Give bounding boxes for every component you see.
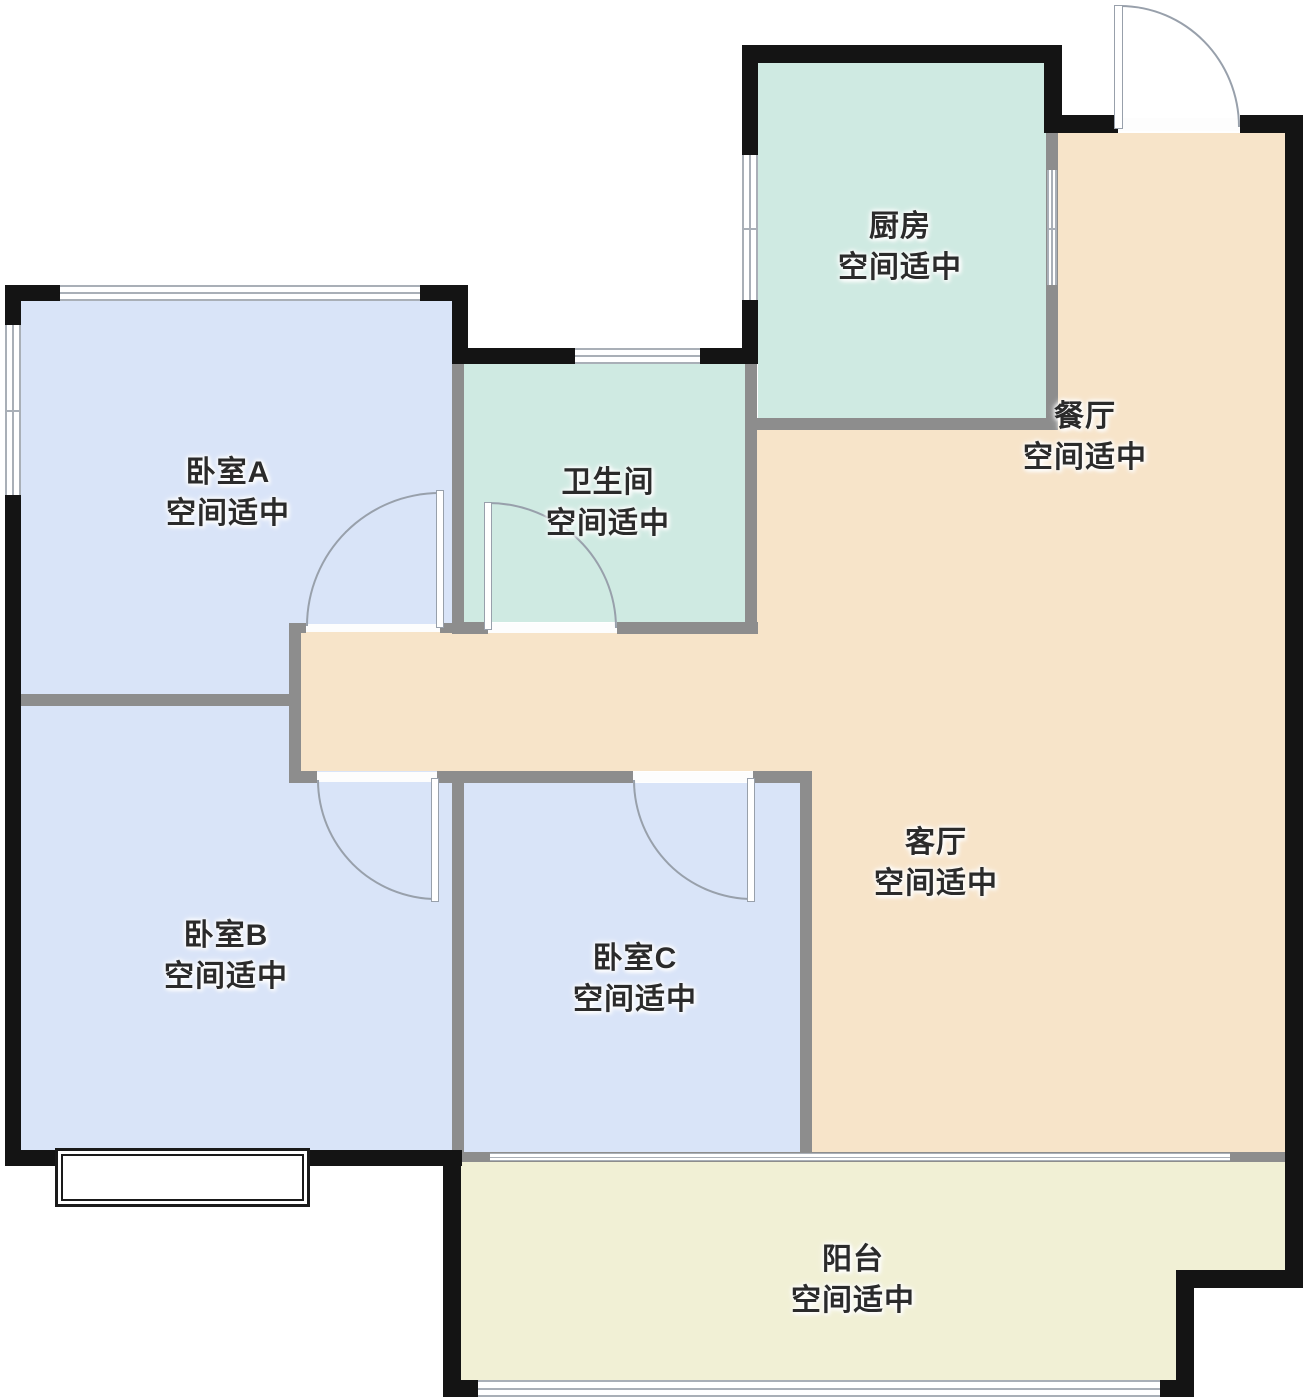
room-label-dining: 餐厅 空间适中 xyxy=(1023,396,1147,478)
room-status: 空间适中 xyxy=(874,863,998,904)
room-name: 餐厅 xyxy=(1023,396,1147,437)
room-status: 空间适中 xyxy=(573,979,697,1020)
bay-window-bedroom-b xyxy=(55,1148,310,1207)
room-label-balcony: 阳台 空间适中 xyxy=(791,1239,915,1321)
window-kitchen-left xyxy=(742,155,758,300)
door-arc-entrance xyxy=(1120,5,1240,127)
window-bedroom-a-left xyxy=(5,325,21,495)
wall-bedroom-c-right xyxy=(800,771,812,1152)
room-name: 卧室A xyxy=(166,452,290,493)
wall-hallway-left xyxy=(289,623,301,783)
wall-balcony-bottom-right xyxy=(1160,1380,1194,1397)
wall-hall-bottom-seg1 xyxy=(289,771,317,783)
door-leaf-bedroom-c xyxy=(747,778,755,902)
door-leaf-bathroom xyxy=(484,502,492,630)
room-status: 空间适中 xyxy=(546,503,670,544)
balcony-sliding-door xyxy=(490,1153,1230,1161)
wall-balcony-step-vertical xyxy=(1176,1270,1194,1397)
floor-plan: 卧室A 空间适中 卧室B 空间适中 卧室C 空间适中 卫生间 空间适中 厨房 空… xyxy=(0,0,1309,1400)
wall-kitchen-bottom xyxy=(745,418,1058,430)
room-area-hallway xyxy=(301,632,757,771)
room-name: 卧室B xyxy=(164,915,288,956)
door-leaf-bedroom-b xyxy=(431,778,439,902)
room-name: 卫生间 xyxy=(546,462,670,503)
wall-kitchen-top xyxy=(742,45,1062,63)
wall-bedroom-a-top-left xyxy=(5,285,65,301)
room-status: 空间适中 xyxy=(838,247,962,288)
window-balcony-bottom xyxy=(478,1380,1160,1397)
exterior-cutout xyxy=(1194,1288,1309,1400)
wall-bathroom-bottom-right xyxy=(617,622,758,634)
window-bedroom-a-top xyxy=(60,285,420,301)
room-status: 空间适中 xyxy=(166,493,290,534)
room-area-dining xyxy=(1058,133,1285,430)
room-name: 卧室C xyxy=(573,938,697,979)
room-status: 空间适中 xyxy=(164,956,288,997)
wall-bathroom-left xyxy=(452,364,464,632)
door-leaf-bedroom-a xyxy=(436,490,444,628)
wall-balcony-step-horizontal xyxy=(1176,1270,1303,1288)
wall-exterior-right xyxy=(1285,115,1303,1288)
room-name: 客厅 xyxy=(874,822,998,863)
wall-bedroom-b-bottom-right xyxy=(310,1150,462,1166)
room-area-dining-living-mid xyxy=(757,430,1285,771)
wall-bathroom-top-left xyxy=(452,348,575,364)
wall-entrance-left xyxy=(1044,115,1118,133)
wall-bedroom-b-c-divider xyxy=(452,783,464,1152)
door-leaf-entrance xyxy=(1114,5,1123,129)
window-bathroom-top xyxy=(575,348,700,364)
room-label-bedroom-a: 卧室A 空间适中 xyxy=(166,452,290,534)
wall-bathroom-bottom-left xyxy=(452,622,488,634)
bay-window-inner-frame xyxy=(61,1154,304,1201)
room-label-living: 客厅 空间适中 xyxy=(874,822,998,904)
wall-bedroom-a-b-divider xyxy=(5,694,301,706)
room-label-bedroom-b: 卧室B 空间适中 xyxy=(164,915,288,997)
room-label-bathroom: 卫生间 空间适中 xyxy=(546,462,670,544)
wall-hallway-top-left xyxy=(289,623,306,633)
room-status: 空间适中 xyxy=(1023,437,1147,478)
room-status: 空间适中 xyxy=(791,1280,915,1321)
room-name: 厨房 xyxy=(838,206,962,247)
wall-bathroom-right xyxy=(745,364,757,634)
wall-balcony-left xyxy=(443,1150,461,1397)
wall-kitchen-left-lower xyxy=(742,300,758,364)
room-label-kitchen: 厨房 空间适中 xyxy=(838,206,962,288)
kitchen-pass-through-window xyxy=(1047,170,1057,285)
room-label-bedroom-c: 卧室C 空间适中 xyxy=(573,938,697,1020)
wall-bedroom-b-bottom-left xyxy=(5,1150,55,1166)
room-name: 阳台 xyxy=(791,1239,915,1280)
wall-hall-bottom-seg2 xyxy=(437,771,633,783)
